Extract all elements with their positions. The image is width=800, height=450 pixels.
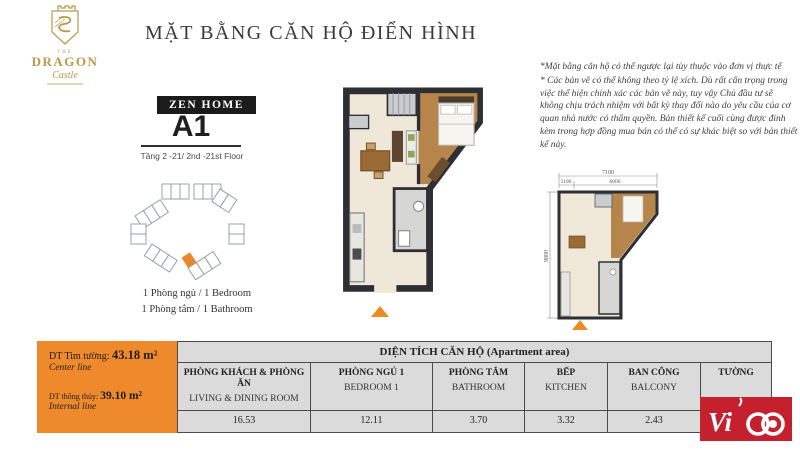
- apartment-area-table: DIỆN TÍCH CĂN HỘ (Apartment area) PHÒNG …: [177, 341, 772, 433]
- col-vi: PHÒNG TẮM: [433, 368, 524, 379]
- col-value: 12.11: [311, 411, 432, 433]
- internal-line-sub: Internal line: [49, 402, 177, 412]
- table-col-living: PHÒNG KHÁCH & PHÒNG ĂNLIVING & DINING RO…: [178, 363, 311, 433]
- center-line-value: 43.18 m²: [112, 348, 157, 362]
- col-en: BEDROOM 1: [311, 383, 432, 393]
- shower-icon: [399, 231, 410, 247]
- col-value: 2.43: [608, 411, 700, 433]
- brochure-page: THE DRAGON Castle MẶT BẰNG CĂN HỘ ĐIỂN H…: [0, 0, 800, 450]
- logo-crown-icon: [58, 6, 75, 11]
- building-key-plan: [126, 180, 250, 280]
- col-vi: BẾP: [525, 368, 607, 379]
- logo-name: DRAGON: [32, 54, 99, 69]
- disclaimer-line2: * Các bản vẽ có thể không theo tỷ lệ xíc…: [540, 75, 798, 152]
- dim-total: 7100: [602, 170, 614, 176]
- internal-line-value: 39.10 m²: [100, 390, 142, 402]
- unit-code-underline: [141, 145, 241, 147]
- table-columns: PHÒNG KHÁCH & PHÒNG ĂNLIVING & DINING RO…: [178, 363, 771, 433]
- main-floor-plan: [302, 82, 524, 304]
- bed: [439, 96, 475, 145]
- dim-right: 6000: [610, 179, 621, 185]
- page-title: MẶT BẰNG CĂN HỘ ĐIỂN HÌNH: [145, 22, 477, 45]
- dim-left: 1100: [561, 179, 572, 185]
- col-vi: PHÒNG NGỦ 1: [311, 368, 432, 379]
- vico-logo: Vi: [700, 397, 792, 441]
- table-title: DIỆN TÍCH CĂN HỘ (Apartment area): [178, 342, 771, 363]
- col-vi: PHÒNG KHÁCH & PHÒNG ĂN: [178, 368, 310, 390]
- dimension-floor-plan: 7100 1100 6000 9800: [543, 168, 673, 326]
- dining-table: [361, 151, 390, 171]
- col-vi: BAN CÔNG: [608, 368, 700, 379]
- disclaimer: *Mặt bằng căn hộ có thể ngược lại tùy th…: [540, 61, 798, 153]
- internal-line-label: DT thông thủy:: [49, 392, 98, 401]
- center-line-label: DT Tim tường:: [49, 351, 110, 362]
- col-value: 16.53: [178, 411, 310, 433]
- bathroom-count: 1 Phòng tắm / 1 Bathroom: [112, 302, 282, 318]
- entrance-marker-mini-icon: [572, 320, 588, 330]
- vico-dot-icon: [769, 420, 777, 428]
- center-line-area: DT Tim tường: 43.18 m²: [49, 348, 177, 363]
- unit-code: A1: [140, 110, 242, 144]
- entrance-gap: [374, 284, 396, 293]
- vico-flame-icon: [739, 398, 741, 406]
- internal-line-area: DT thông thủy: 39.10 m²: [49, 390, 177, 402]
- col-value: 3.70: [433, 411, 524, 433]
- vico-letters: Vi: [708, 407, 733, 437]
- kitchen-counter: [350, 213, 364, 282]
- col-en: BALCONY: [608, 383, 700, 393]
- col-en: KITCHEN: [525, 383, 607, 393]
- toilet-icon: [414, 201, 424, 211]
- dragon-castle-logo: THE DRAGON Castle: [22, 2, 108, 94]
- table-col-kitchen: BẾPKITCHEN 3.32: [525, 363, 608, 433]
- entrance-marker-icon: [371, 306, 389, 317]
- table-col-bathroom: PHÒNG TẮMBATHROOM 3.70: [433, 363, 525, 433]
- table-col-bedroom: PHÒNG NGỦ 1BEDROOM 1 12.11: [311, 363, 433, 433]
- logo-sub: Castle: [52, 70, 78, 81]
- area-summary-box: DT Tim tường: 43.18 m² Center line DT th…: [37, 341, 177, 433]
- col-en: BATHROOM: [433, 383, 524, 393]
- unit-floors: Tầng 2 -21/ 2nd -21st Floor: [128, 151, 256, 161]
- bedroom-count: 1 Phòng ngủ / 1 Bedroom: [112, 286, 282, 302]
- col-value: 3.32: [525, 411, 607, 433]
- side-ledge: [349, 115, 369, 128]
- center-line-sub: Center line: [49, 363, 177, 373]
- dim-height: 9800: [544, 250, 550, 262]
- tv-cabinet: [392, 131, 403, 162]
- col-en: LIVING & DINING ROOM: [178, 394, 310, 404]
- unit-facts: 1 Phòng ngủ / 1 Bedroom 1 Phòng tắm / 1 …: [112, 286, 282, 318]
- table-col-balcony: BAN CÔNGBALCONY 2.43: [608, 363, 701, 433]
- ac-ledge: [387, 93, 416, 115]
- col-vi: TƯỜNG: [701, 368, 771, 379]
- disclaimer-line1: *Mặt bằng căn hộ có thể ngược lại tùy th…: [540, 61, 798, 74]
